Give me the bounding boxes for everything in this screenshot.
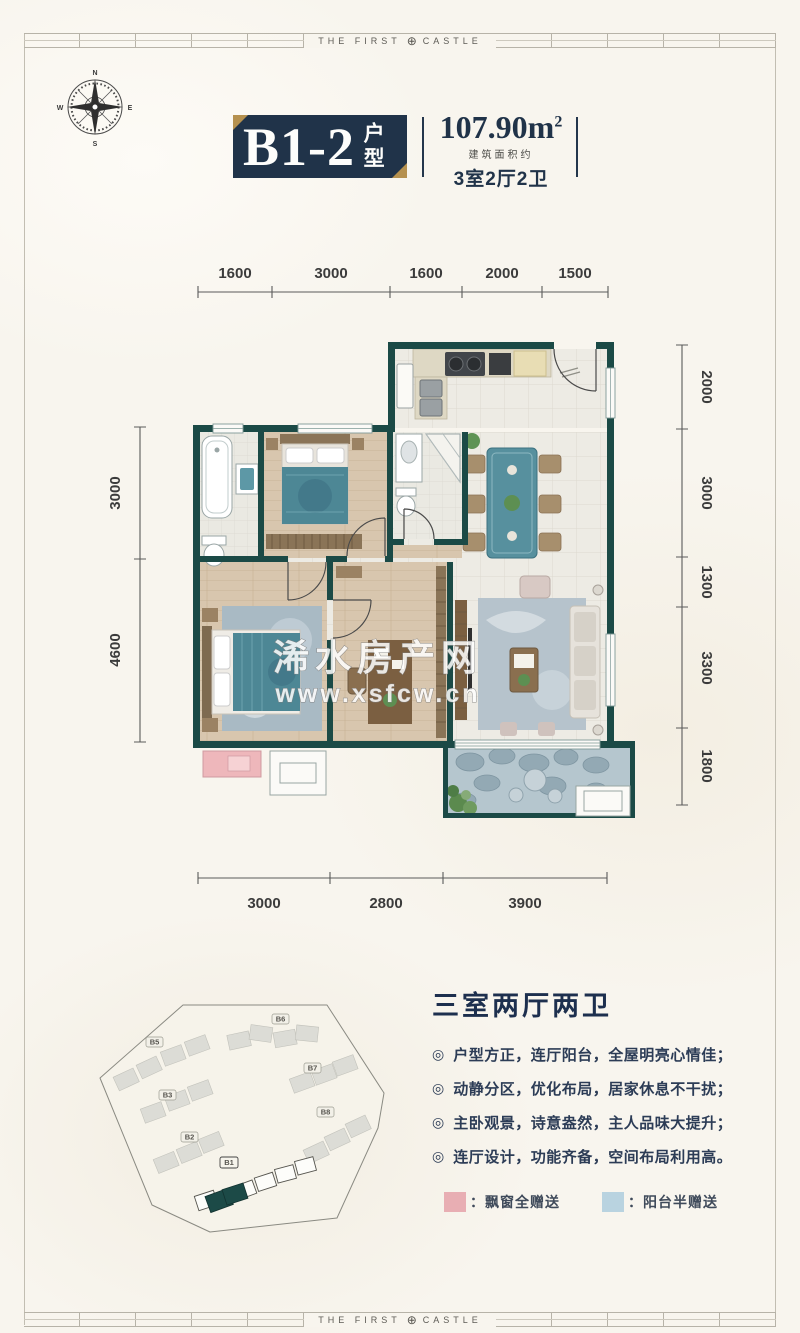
area-superscript: 2 xyxy=(554,113,562,130)
feature-item: ◎ 户型方正，连厅阳台，全屋明亮心情佳； xyxy=(432,1037,732,1071)
dim-label: 3000 xyxy=(314,265,347,282)
feature-item: ◎ 动静分区，优化布局，居家休息不干扰； xyxy=(432,1071,732,1105)
unit-area-block: 107.90m2 建筑面积约 3室2厅2卫 xyxy=(430,110,572,191)
dim-label: 1300 xyxy=(698,565,715,598)
ac-platform xyxy=(270,751,326,795)
dim-label: 3000 xyxy=(698,476,715,509)
brand-left: THE FIRST xyxy=(318,36,401,46)
dim-label: 4600 xyxy=(107,633,124,666)
dim-label: 2000 xyxy=(485,265,518,282)
compass-rose-icon: N E S W xyxy=(55,67,135,147)
pillow xyxy=(214,673,230,706)
brand-right: CASTLE xyxy=(423,36,482,46)
watermark: 浠水房产网 www.xsfcw.cn xyxy=(273,637,483,708)
floorplan-drawing: 1600 3000 1600 2000 1500 2000 3000 1300 … xyxy=(90,250,730,930)
nightstand xyxy=(266,438,278,450)
unit-rooms-label: 3室2厅2卫 xyxy=(430,164,572,191)
bullet-icon: ◎ xyxy=(432,1047,444,1061)
building-label: B6 xyxy=(276,1015,286,1024)
feature-text: 主卧观景，诗意盎然，主人品味大提升； xyxy=(453,1112,732,1133)
gold-corner-accent xyxy=(233,115,248,130)
unit-type-label: 户型 xyxy=(361,122,384,172)
frame-band-bottom: THE FIRST ⊕ CASTLE xyxy=(24,1312,776,1327)
dim-label: 1600 xyxy=(218,265,251,282)
building-label: B8 xyxy=(321,1108,331,1117)
bed-headboard xyxy=(202,626,212,718)
washbasin xyxy=(240,468,254,490)
unit-area-value: 107.90m2 xyxy=(430,110,572,145)
feature-item: ◎ 连厅设计，功能齐备，空间布局利用高。 xyxy=(432,1139,732,1173)
dim-label: 1500 xyxy=(558,265,591,282)
brand-left: THE FIRST xyxy=(318,1315,401,1325)
watermark-line2: www.xsfcw.cn xyxy=(274,680,480,708)
compass-s-label: S xyxy=(93,141,98,147)
brand-logo-icon: ⊕ xyxy=(407,1313,417,1327)
compass-n-label: N xyxy=(92,70,97,77)
floor-lamp xyxy=(593,585,603,595)
feature-text: 连厅设计，功能齐备，空间布局利用高。 xyxy=(453,1146,732,1167)
refrigerator xyxy=(397,364,413,408)
features-list: ◎ 户型方正，连厅阳台，全屋明亮心情佳； ◎ 动静分区，优化布局，居家休息不干扰… xyxy=(432,1037,732,1173)
dim-label: 3000 xyxy=(107,476,124,509)
dim-label: 3300 xyxy=(698,651,715,684)
sink-basin xyxy=(420,399,442,416)
feature-text: 户型方正，连厅阳台，全屋明亮心情佳； xyxy=(453,1044,732,1065)
armchair xyxy=(520,576,550,598)
table-centerpiece xyxy=(504,495,520,511)
toilet xyxy=(204,544,224,566)
cabinet xyxy=(336,566,362,578)
header-divider xyxy=(576,117,578,177)
unit-area-note: 建筑面积约 xyxy=(430,146,572,161)
cutting-board xyxy=(514,351,546,376)
dim-label: 1600 xyxy=(409,265,442,282)
compass-w-label: W xyxy=(57,105,64,112)
brand-logo-icon: ⊕ xyxy=(407,34,417,48)
nightstand xyxy=(202,718,218,732)
pillow xyxy=(286,448,313,463)
dim-label: 3000 xyxy=(247,895,280,912)
gold-corner-accent xyxy=(392,163,407,178)
feature-text: 动静分区，优化布局，居家休息不干扰； xyxy=(453,1078,732,1099)
bullet-icon: ◎ xyxy=(432,1115,444,1129)
building-label: B3 xyxy=(163,1091,173,1100)
pillow xyxy=(317,448,344,463)
building-label-highlighted: B1 xyxy=(224,1158,234,1167)
kitchen-appliance xyxy=(489,353,511,375)
dim-label: 2800 xyxy=(369,895,402,912)
siteplan-map: B5 B6 B3 B7 B8 B2 B1 xyxy=(85,995,405,1240)
legend-item-bay-window: ：飘窗全赠送 xyxy=(444,1192,560,1212)
toilet xyxy=(397,496,415,516)
nightstand xyxy=(202,608,218,622)
frame-band-top: THE FIRST ⊕ CASTLE xyxy=(24,33,776,48)
floor-lamp xyxy=(593,725,603,735)
coffee-table-plant xyxy=(518,674,530,686)
area-number: 107.90m xyxy=(440,109,555,145)
poster-page: THE FIRST ⊕ CASTLE THE FIRST ⊕ CASTLE xyxy=(0,0,800,1333)
frame-edge-left xyxy=(24,34,25,1325)
sink-basin xyxy=(420,380,442,397)
bed-headboard xyxy=(280,434,350,444)
dim-label: 2000 xyxy=(698,370,715,403)
nightstand xyxy=(352,438,364,450)
feature-item: ◎ 主卧观景，诗意盎然，主人品味大提升； xyxy=(432,1105,732,1139)
header-divider xyxy=(422,117,424,177)
building-label: B7 xyxy=(308,1064,318,1073)
brand-lockup-bottom: THE FIRST ⊕ CASTLE xyxy=(304,1313,496,1327)
toilet-tank xyxy=(396,488,416,496)
features-heading: 三室两厅两卫 xyxy=(432,984,612,1023)
dim-label: 3900 xyxy=(508,895,541,912)
washbasin xyxy=(401,441,417,463)
brand-lockup-top: THE FIRST ⊕ CASTLE xyxy=(304,34,496,48)
stool xyxy=(500,722,517,736)
bullet-icon: ◎ xyxy=(432,1149,444,1163)
unit-code: B1-2 xyxy=(233,120,355,174)
legend-item-balcony: ：阳台半赠送 xyxy=(602,1192,718,1212)
bullet-icon: ◎ xyxy=(432,1081,444,1095)
bay-window-swatch xyxy=(444,1192,466,1212)
pillow xyxy=(214,636,230,669)
legend: ：飘窗全赠送 ：阳台半赠送 xyxy=(444,1192,718,1212)
frame-edge-right xyxy=(775,34,776,1325)
watermark-line1: 浠水房产网 xyxy=(273,637,483,678)
compass-e-label: E xyxy=(128,105,133,112)
stool xyxy=(538,722,555,736)
building-label: B5 xyxy=(150,1038,160,1047)
unit-title-box: B1-2 户型 xyxy=(233,115,407,178)
legend-label: ：飘窗全赠送 xyxy=(470,1192,560,1212)
legend-label: ：阳台半赠送 xyxy=(628,1192,718,1212)
building-label: B2 xyxy=(185,1133,195,1142)
balcony-swatch xyxy=(602,1192,624,1212)
dim-label: 1800 xyxy=(698,749,715,782)
brand-right: CASTLE xyxy=(423,1315,482,1325)
